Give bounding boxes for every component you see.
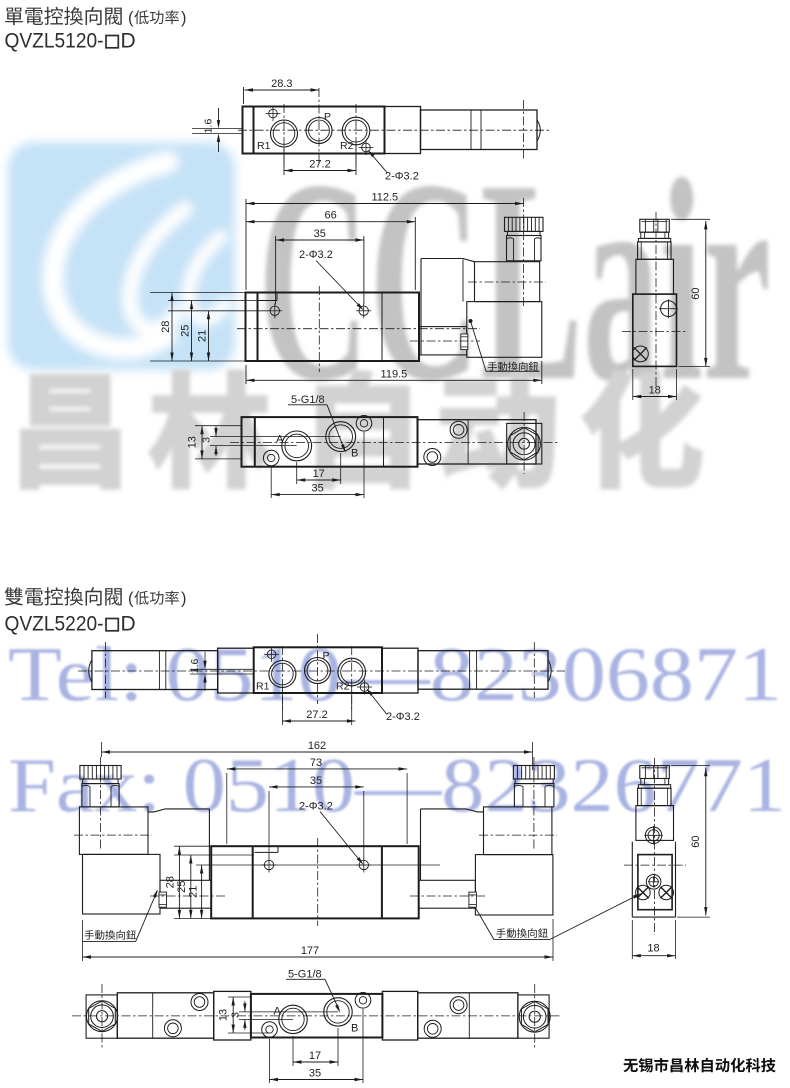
svg-text:17: 17 — [313, 468, 325, 480]
svg-text:Tel: 0510—82306871: Tel: 0510—82306871 — [8, 631, 782, 717]
svg-text:A: A — [276, 433, 284, 445]
svg-text:13: 13 — [218, 1009, 230, 1021]
svg-text:28: 28 — [165, 876, 177, 888]
svg-text:2-Φ3.2: 2-Φ3.2 — [385, 171, 419, 183]
svg-text:B: B — [351, 448, 358, 460]
svg-text:(: ( — [128, 9, 134, 27]
svg-text:1.6: 1.6 — [189, 659, 201, 674]
svg-text:17: 17 — [309, 1050, 321, 1062]
svg-text:119.5: 119.5 — [381, 368, 408, 380]
svg-text:35: 35 — [311, 483, 323, 495]
svg-text:28: 28 — [160, 321, 172, 333]
svg-text:(: ( — [128, 590, 134, 608]
svg-text:3: 3 — [230, 1012, 242, 1018]
svg-text:1.6: 1.6 — [203, 119, 215, 134]
svg-text:B: B — [351, 1023, 358, 1035]
svg-text:3: 3 — [201, 437, 213, 443]
svg-text:18: 18 — [647, 943, 659, 955]
svg-text:21: 21 — [188, 886, 200, 898]
svg-text:21: 21 — [197, 330, 209, 342]
svg-text:2-Φ3.2: 2-Φ3.2 — [386, 711, 420, 723]
svg-text:R1: R1 — [257, 140, 271, 152]
svg-text:): ) — [181, 590, 187, 608]
svg-text:P: P — [323, 650, 330, 662]
svg-text:35: 35 — [314, 228, 326, 240]
svg-text:35: 35 — [309, 1068, 321, 1080]
svg-text:60: 60 — [690, 836, 702, 848]
svg-text:27.2: 27.2 — [306, 709, 327, 721]
svg-text:112.5: 112.5 — [371, 192, 398, 204]
svg-text:5-G1/8: 5-G1/8 — [288, 969, 322, 981]
svg-text:18: 18 — [649, 385, 661, 397]
svg-text:5-G1/8: 5-G1/8 — [291, 394, 325, 406]
svg-text:R2: R2 — [340, 140, 354, 152]
svg-text:D: D — [121, 30, 136, 53]
svg-text:25: 25 — [176, 881, 188, 893]
svg-text:162: 162 — [308, 740, 326, 752]
svg-text:13: 13 — [187, 436, 199, 448]
svg-text:R1: R1 — [256, 681, 270, 693]
svg-text:60: 60 — [690, 288, 702, 300]
svg-text:66: 66 — [324, 210, 336, 222]
svg-text:P: P — [324, 111, 331, 123]
svg-text:A: A — [274, 1005, 282, 1017]
svg-text:QVZL5220-: QVZL5220- — [5, 613, 104, 636]
svg-text:27.2: 27.2 — [309, 159, 330, 171]
svg-text:73: 73 — [310, 757, 322, 769]
svg-text:R2: R2 — [336, 681, 350, 693]
svg-text:D: D — [121, 613, 136, 636]
svg-text:28.3: 28.3 — [271, 78, 292, 90]
svg-text:25: 25 — [180, 325, 192, 337]
svg-text:2-Φ3.2: 2-Φ3.2 — [299, 249, 333, 261]
svg-text:35: 35 — [310, 775, 322, 787]
svg-text:QVZL5120-: QVZL5120- — [5, 30, 104, 53]
svg-text:2-Φ3.2: 2-Φ3.2 — [299, 801, 333, 813]
svg-text:): ) — [181, 9, 187, 27]
svg-text:177: 177 — [301, 945, 319, 957]
